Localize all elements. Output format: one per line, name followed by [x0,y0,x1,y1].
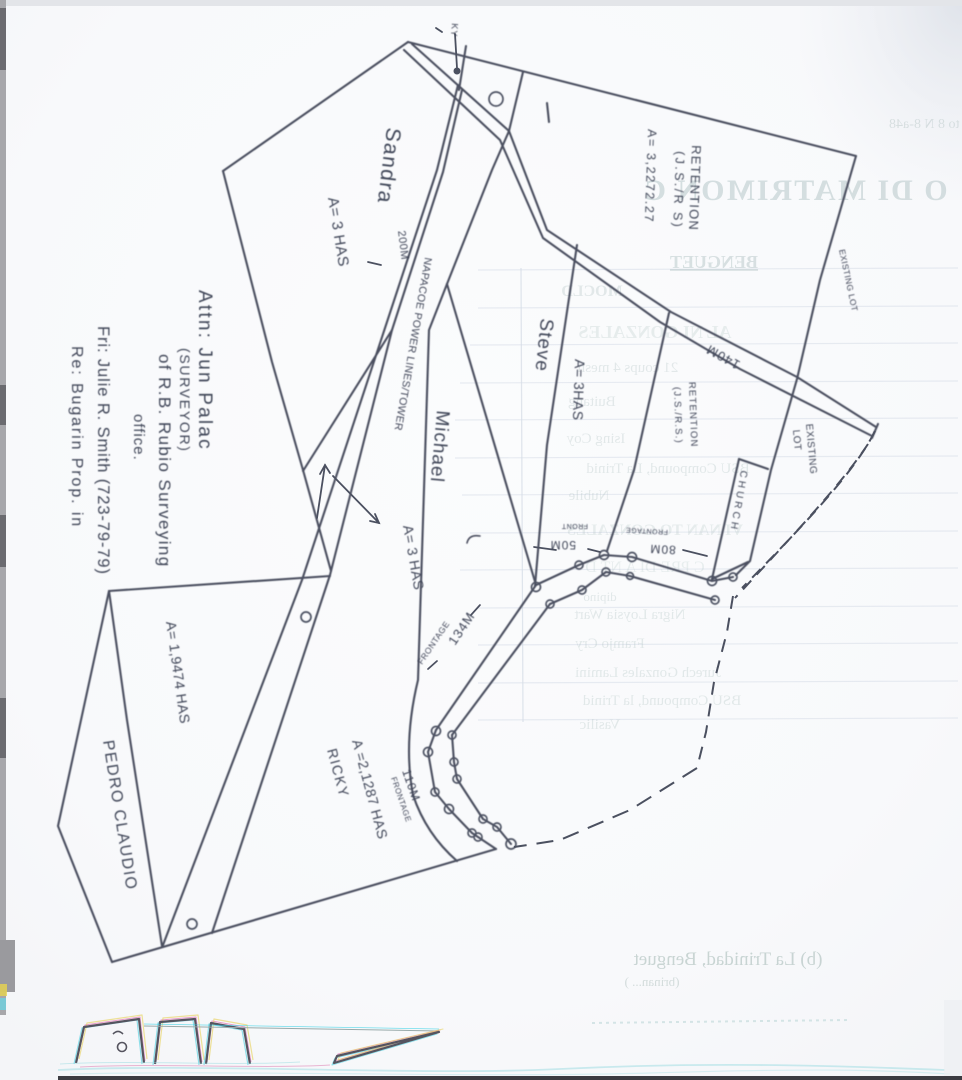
svg-text:RETENTION: RETENTION [686,382,699,448]
svg-text:80M: 80M [649,542,676,557]
svg-text:(SURVEYOR): (SURVEYOR) [177,348,193,453]
svg-text:Jurech Gonzales Lamini: Jurech Gonzales Lamini [575,665,721,681]
svg-text:RETENTION: RETENTION [686,145,704,231]
svg-text:Nigra Loysia Wart: Nigra Loysia Wart [574,607,686,623]
svg-text:FRONT: FRONT [561,522,588,529]
svg-text:(brinan... ): (brinan... ) [625,974,680,989]
svg-text:(b) La Trinidad, Benguet: (b) La Trinidad, Benguet [633,949,823,970]
svg-text:21 coups 4 mesh: 21 coups 4 mesh [577,360,678,376]
svg-text:Ising Coy: Ising Coy [566,431,625,447]
svg-text:office.: office. [130,414,147,461]
svg-text:Vasilic: Vasilic [579,717,620,733]
svg-text:19 to 8 N 8-a48: 19 to 8 N 8-a48 [889,117,962,132]
svg-text:LOT: LOT [790,429,803,451]
svg-text:dipino: dipino [583,589,616,604]
svg-text:BENGUET: BENGUET [670,252,758,272]
svg-text:Nubile: Nubile [568,488,609,504]
svg-text:Framjo Cry: Framjo Cry [575,636,645,652]
svg-text:BSU Compound, La Trinid: BSU Compound, La Trinid [586,461,750,477]
svg-text:(J.S./R S): (J.S./R S) [670,151,687,230]
svg-text:KY: KY [449,23,460,38]
svg-text:Fri: Julie R. Smith (723-79-79: Fri: Julie R. Smith (723-79-79) [94,326,112,575]
svg-text:of R.B. Rubio Surveying: of R.B. Rubio Surveying [155,354,174,568]
svg-text:50M: 50M [550,538,576,552]
svg-text:(J.S./R.S.): (J.S./R.S.) [671,387,684,444]
svg-text:BSU Compound, la Trinid: BSU Compound, la Trinid [582,693,741,709]
svg-text:Attn: Jun Palac: Attn: Jun Palac [194,290,215,451]
svg-text:A= 3HAS: A= 3HAS [570,359,588,421]
svg-text:Re: Bugarin Prop. in: Re: Bugarin Prop. in [68,346,85,528]
